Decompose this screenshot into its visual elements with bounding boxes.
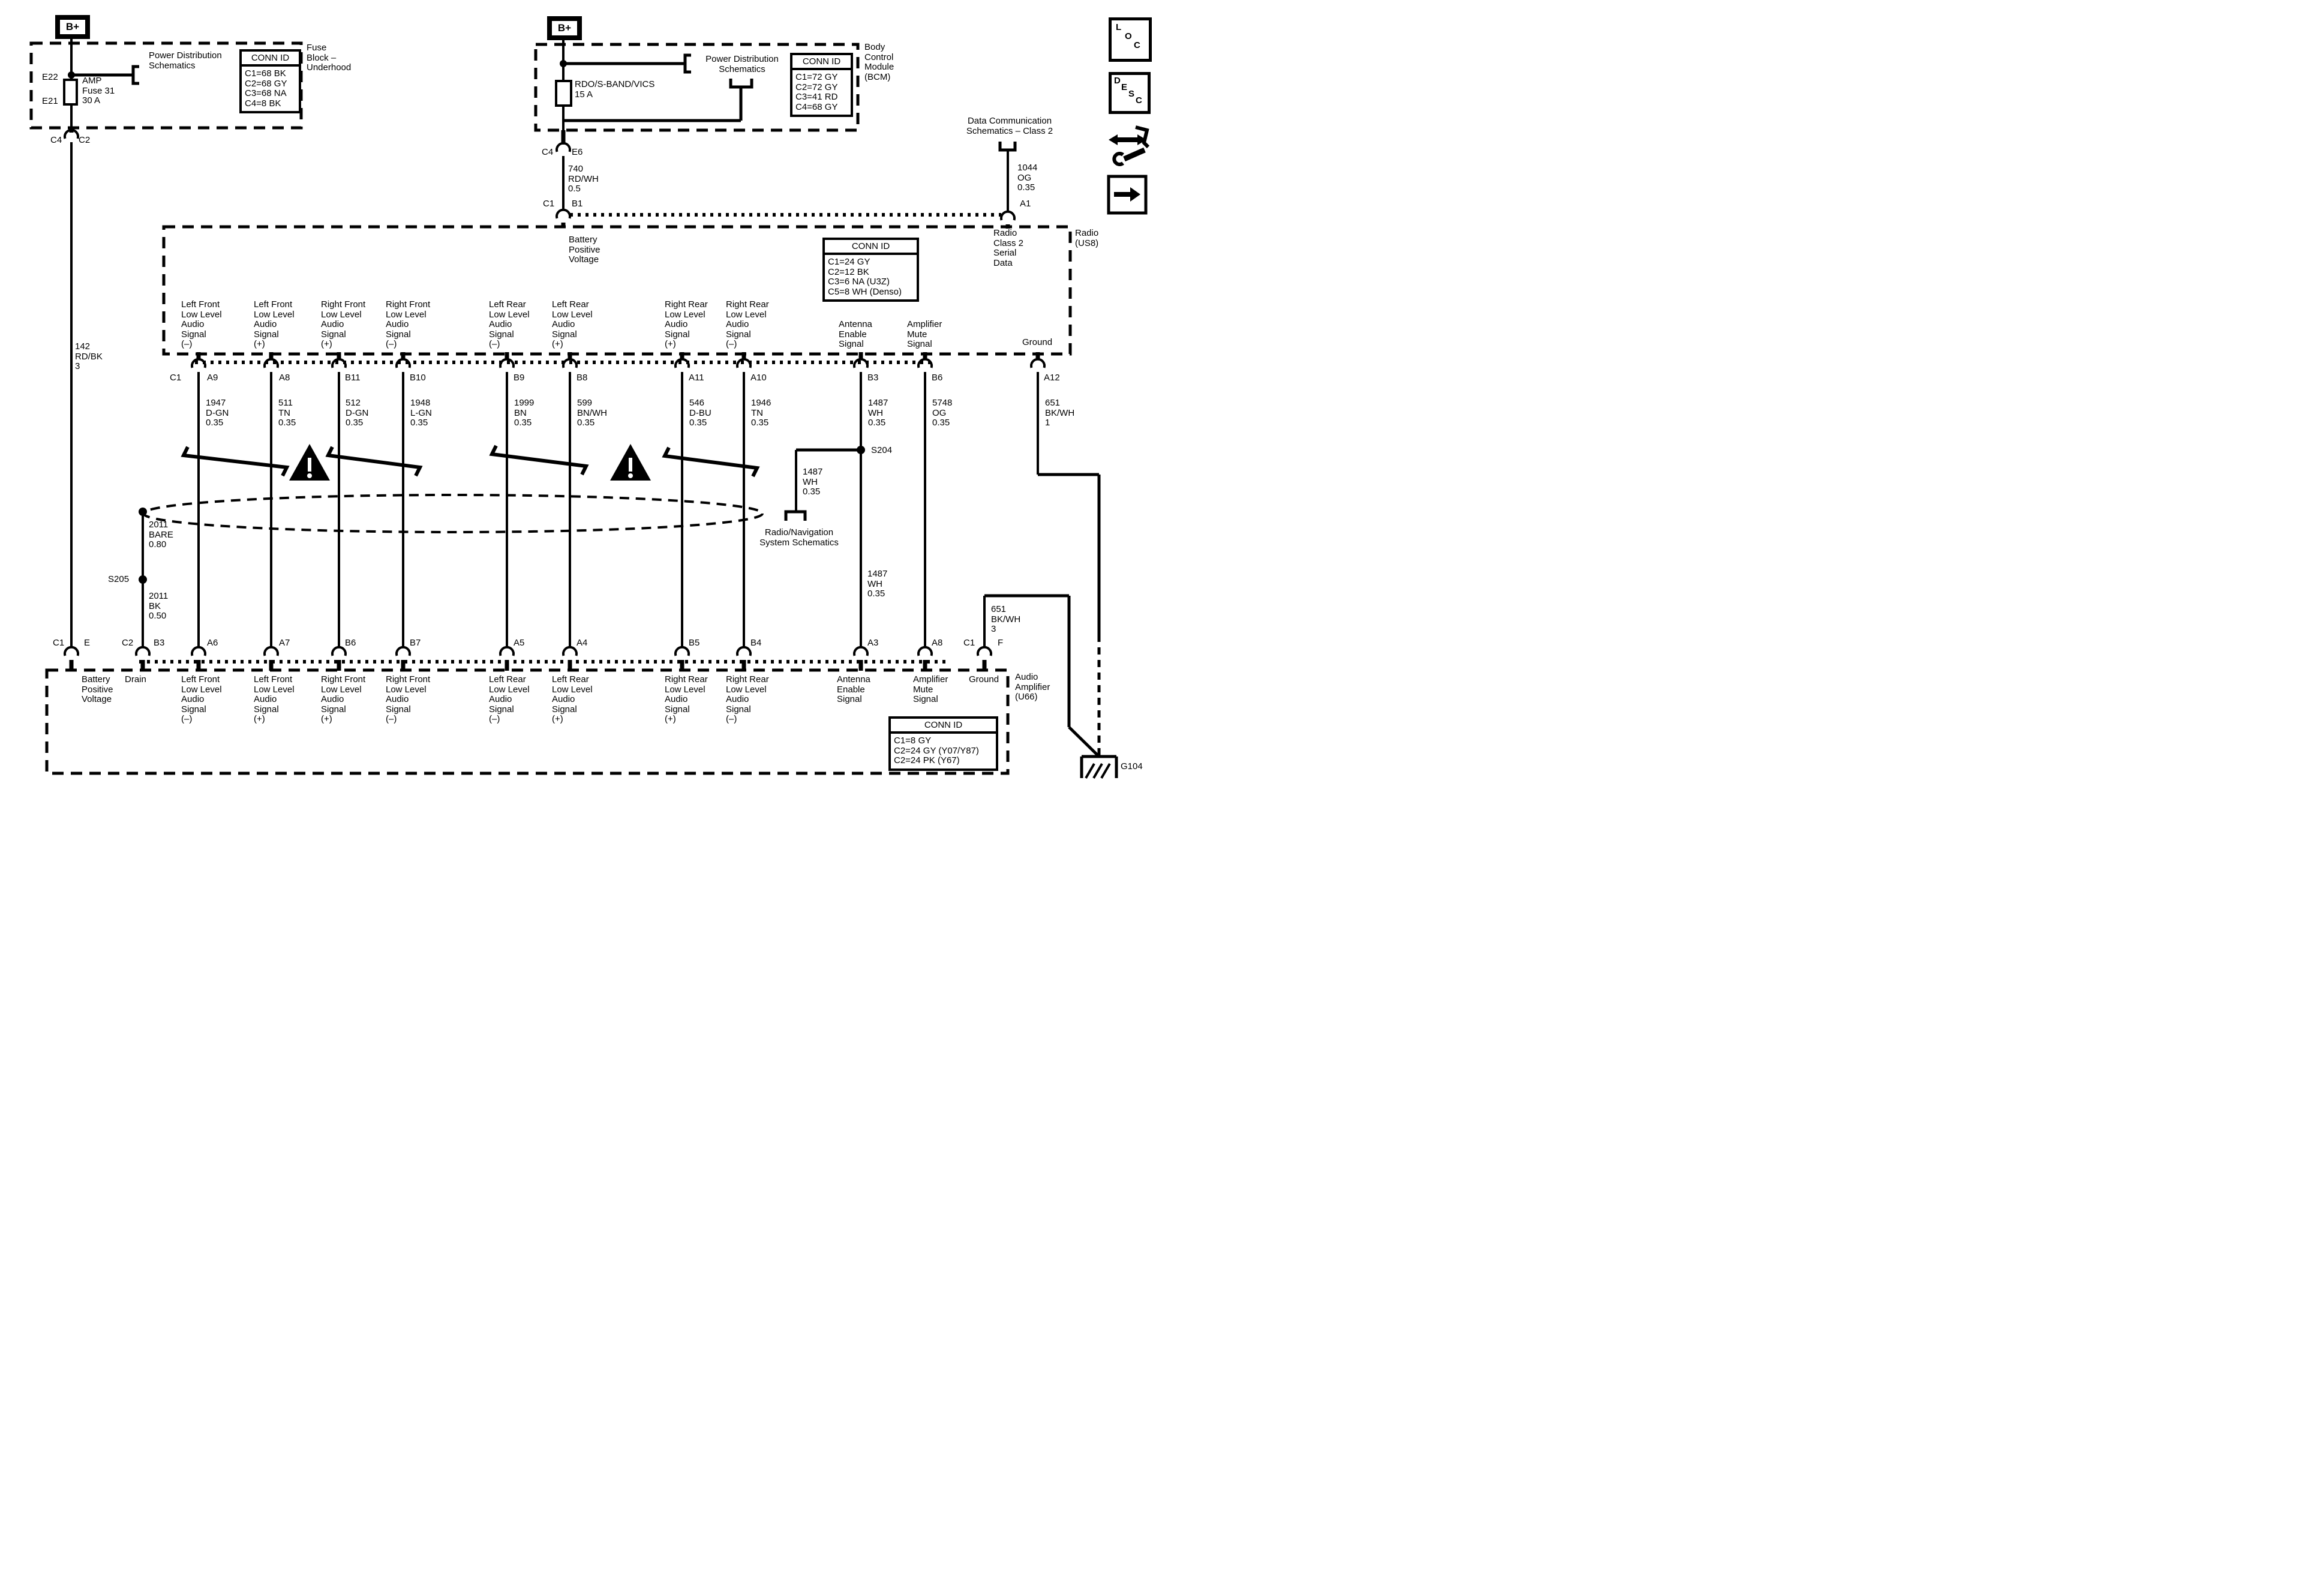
wire-label-511: 511 TN 0.35 (278, 398, 296, 428)
amp-battery-label: Battery Positive Voltage (82, 675, 113, 705)
wire-label-142: 142 RD/BK 3 (75, 342, 103, 372)
loc-letter: C (1134, 40, 1140, 50)
amp-signal-mute: Amplifier Mute Signal (913, 675, 948, 705)
ground-symbol-g104 (1082, 757, 1116, 778)
radio-conn-id-table: CONN ID C1=24 GY C2=12 BK C3=6 NA (U3Z) … (822, 238, 919, 302)
amp-signal-lf-pos: Left Front Low Level Audio Signal (+) (254, 675, 295, 725)
conn-id-rows: C1=68 BK C2=68 GY C3=68 NA C4=8 BK (242, 67, 299, 111)
connector-label-c2: C2 (79, 136, 90, 146)
wire-label-2011-bare: 2011 BARE 0.80 (149, 520, 173, 550)
wire-label-1487-lower: 1487 WH 0.35 (867, 569, 887, 599)
fuse-block-conn-id-table: CONN ID C1=68 BK C2=68 GY C3=68 NA C4=8 … (239, 49, 301, 113)
amp-signal-lr-neg: Left Rear Low Level Audio Signal (–) (489, 675, 530, 725)
connector-label-b1: B1 (572, 199, 582, 209)
fuse-block-name: Fuse Block – Underhood (307, 43, 351, 73)
splice-s205 (139, 575, 147, 584)
ref-bracket (1000, 142, 1015, 150)
radio-pin-label: C1 (170, 373, 181, 383)
radio-signal-mute: Amplifier Mute Signal (907, 320, 942, 350)
amp-signal-rf-pos: Right Front Low Level Audio Signal (+) (321, 675, 365, 725)
amp-drain-label: Drain (125, 675, 146, 685)
amp-pin-label: B7 (410, 638, 421, 649)
desc-icon: D E S C (1109, 72, 1151, 114)
ref-bracket (133, 67, 139, 83)
amp-pin-label: A7 (279, 638, 290, 649)
amp-pin-label: A5 (514, 638, 524, 649)
power-distribution-ref: Power Distribution Schematics (700, 55, 784, 74)
bplus-label: B+ (558, 22, 571, 34)
amp-pin-label: A8 (932, 638, 942, 649)
amp-pin-label: B6 (345, 638, 356, 649)
desc-letter: D (1114, 76, 1121, 86)
amp-pin-label: B4 (750, 638, 761, 649)
bplus-label: B+ (66, 21, 79, 33)
wire-label-5748: 5748 OG 0.35 (932, 398, 952, 428)
bcm-conn-id-table: CONN ID C1=72 GY C2=72 GY C3=41 RD C4=68… (790, 53, 853, 117)
service-info-icon (1109, 127, 1148, 164)
pin-label-a1: A1 (1020, 199, 1031, 209)
wire-label-599: 599 BN/WH 0.35 (577, 398, 607, 428)
conn-id-header: CONN ID (891, 719, 996, 734)
amp-pin-label: A6 (207, 638, 218, 649)
amp-signal-rf-neg: Right Front Low Level Audio Signal (–) (386, 675, 430, 725)
conn-id-rows: C1=8 GY C2=24 GY (Y07/Y87) C2=24 PK (Y67… (891, 734, 996, 769)
conn-id-header: CONN ID (825, 240, 917, 255)
conn-id-rows: C1=24 GY C2=12 BK C3=6 NA (U3Z) C5=8 WH … (825, 255, 917, 299)
conn-id-rows: C1=72 GY C2=72 GY C3=41 RD C4=68 GY (792, 70, 851, 115)
radio-pin-label: B3 (867, 373, 878, 383)
amp-pin-label: B5 (689, 638, 699, 649)
radio-signal-lr-neg: Left Rear Low Level Audio Signal (–) (489, 300, 530, 350)
twisted-pair-symbol (184, 446, 757, 476)
wiring-diagram-page: B+ B+ E22 E21 AMP Fuse 31 30 A Power Dis… (0, 0, 1162, 786)
amplifier-pins (65, 647, 991, 671)
junction-dot (68, 71, 75, 79)
amp-pin-label: C1 (53, 638, 64, 649)
radio-battery-label: Battery Positive Voltage (569, 235, 600, 265)
connector-label-e6: E6 (572, 148, 582, 158)
data-comm-ref: Data Communication Schematics – Class 2 (959, 116, 1061, 136)
amp-ground-label: Ground (969, 675, 999, 685)
connector-label-c4: C4 (50, 136, 62, 146)
amp-pin-label: A4 (577, 638, 587, 649)
radio-serial-label: Radio Class 2 Serial Data (993, 229, 1023, 268)
amp-pin-label: F (998, 638, 1003, 649)
fuse-31-label: AMP Fuse 31 30 A (82, 76, 115, 106)
amp-signal-rr-pos: Right Rear Low Level Audio Signal (+) (665, 675, 708, 725)
wire-label-1044: 1044 OG 0.35 (1017, 163, 1037, 193)
fuse-rdo-symbol (556, 81, 571, 106)
amp-signal-rr-neg: Right Rear Low Level Audio Signal (–) (726, 675, 769, 725)
radio-pin-label: A12 (1044, 373, 1060, 383)
fuse-terminal-e22: E22 (42, 73, 58, 83)
splice-label-s204: S204 (871, 446, 892, 456)
ref-bracket (685, 55, 691, 72)
connector-label-c1: C1 (543, 199, 554, 209)
amp-conn-id-table: CONN ID C1=8 GY C2=24 GY (Y07/Y87) C2=24… (888, 716, 998, 771)
warning-triangle-icon (289, 444, 651, 481)
ref-bracket (731, 79, 752, 87)
wire-label-1946: 1946 TN 0.35 (751, 398, 771, 428)
radio-pin-label: A10 (750, 373, 767, 383)
amp-pin-label: C2 (122, 638, 133, 649)
wire-label-1487: 1487 WH 0.35 (868, 398, 888, 428)
amp-signal-lr-pos: Left Rear Low Level Audio Signal (+) (552, 675, 593, 725)
radio-nav-ref: Radio/Navigation System Schematics (750, 528, 848, 548)
radio-pin-label: A11 (689, 373, 704, 383)
radio-pins (192, 352, 1044, 368)
amplifier-name: Audio Amplifier (U66) (1015, 673, 1050, 703)
amp-pin-label: A3 (867, 638, 878, 649)
radio-signal-lf-neg: Left Front Low Level Audio Signal (–) (181, 300, 222, 350)
ground-label-g104: G104 (1121, 762, 1143, 772)
wire-label-1947: 1947 D-GN 0.35 (206, 398, 229, 428)
amp-pin-label: C1 (963, 638, 975, 649)
radio-signal-lr-pos: Left Rear Low Level Audio Signal (+) (552, 300, 593, 350)
radio-pin-label: A8 (279, 373, 290, 383)
wire-label-1487-branch: 1487 WH 0.35 (803, 467, 822, 497)
radio-signal-lf-pos: Left Front Low Level Audio Signal (+) (254, 300, 295, 350)
wire-label-2011-bk: 2011 BK 0.50 (149, 592, 168, 622)
wire-label-651-3: 651 BK/WH 3 (991, 605, 1020, 635)
radio-pin-label: B11 (345, 373, 361, 383)
loc-icon: L O C (1109, 17, 1152, 62)
splice-label-s205: S205 (108, 575, 129, 585)
wire-label-651-1: 651 BK/WH 1 (1045, 398, 1074, 428)
shield-ellipse (143, 495, 762, 532)
conn-id-header: CONN ID (792, 55, 851, 70)
radio-pin-label: B10 (410, 373, 426, 383)
pin-a1 (1001, 212, 1014, 220)
amp-signal-lf-neg: Left Front Low Level Audio Signal (–) (181, 675, 222, 725)
fuse-terminal-e21: E21 (42, 97, 58, 107)
wire-label-1948: 1948 L-GN 0.35 (410, 398, 432, 428)
bcm-name: Body Control Module (BCM) (864, 43, 894, 82)
bplus-terminal-mid: B+ (547, 16, 582, 40)
radio-signal-rf-neg: Right Front Low Level Audio Signal (–) (386, 300, 430, 350)
wire-651-amp-ground (1069, 727, 1099, 757)
power-distribution-ref: Power Distribution Schematics (149, 51, 222, 71)
connector-c1-b1 (557, 210, 570, 218)
fuse-31-symbol (64, 80, 77, 104)
amp-pin-label: E (84, 638, 90, 649)
radio-pin-label: B6 (932, 373, 942, 383)
fuse-rdo-label: RDO/S-BAND/VICS 15 A (575, 80, 654, 100)
audio-wires (199, 372, 925, 647)
conn-id-header: CONN ID (242, 52, 299, 67)
ref-bracket (786, 512, 805, 521)
amp-signal-antenna: Antenna Enable Signal (837, 675, 870, 705)
bplus-terminal-left: B+ (55, 15, 90, 39)
wire-label-512: 512 D-GN 0.35 (346, 398, 368, 428)
loc-letter: L (1116, 22, 1121, 32)
radio-signal-rr-neg: Right Rear Low Level Audio Signal (–) (726, 300, 769, 350)
radio-signal-rf-pos: Right Front Low Level Audio Signal (+) (321, 300, 365, 350)
radio-pin-label: B9 (514, 373, 524, 383)
desc-letter: S (1128, 89, 1134, 99)
radio-name: Radio (US8) (1075, 229, 1098, 248)
wire-label-546: 546 D-BU 0.35 (689, 398, 711, 428)
radio-pin-label: A9 (207, 373, 218, 383)
wire-label-1999: 1999 BN 0.35 (514, 398, 534, 428)
radio-signal-rr-pos: Right Rear Low Level Audio Signal (+) (665, 300, 708, 350)
loc-letter: O (1125, 31, 1132, 41)
radio-signal-antenna: Antenna Enable Signal (839, 320, 872, 350)
radio-ground-label: Ground (1022, 338, 1052, 348)
wire-label-740: 740 RD/WH 0.5 (568, 164, 599, 194)
amp-pin-label: B3 (154, 638, 164, 649)
radio-pin-label: B8 (577, 373, 587, 383)
desc-letter: E (1121, 82, 1127, 92)
connector-label-c4: C4 (542, 148, 553, 158)
desc-letter: C (1136, 95, 1142, 106)
forward-arrow-icon (1109, 176, 1146, 213)
